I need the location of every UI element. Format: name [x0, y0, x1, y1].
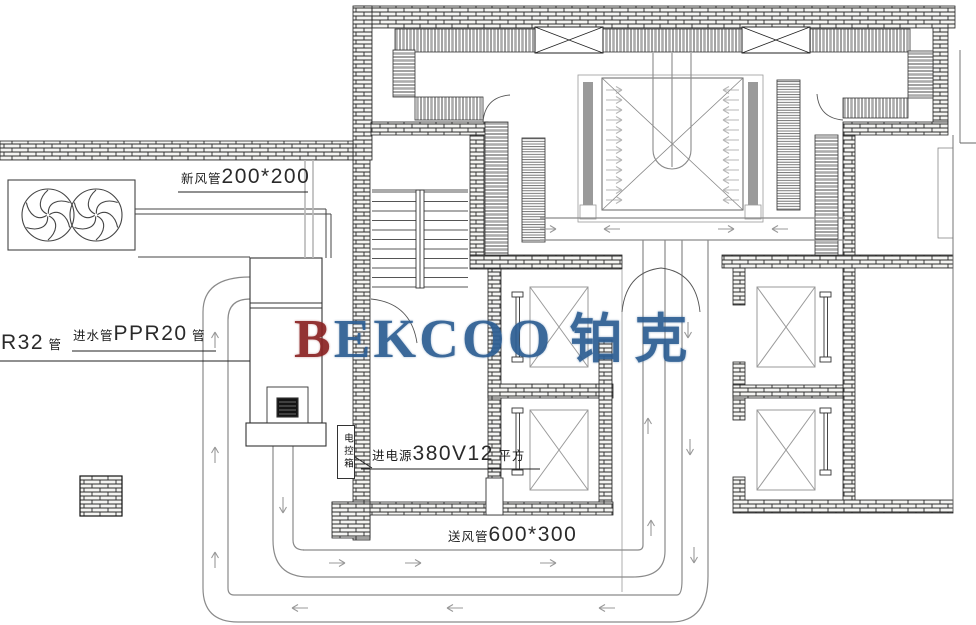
label-supply-air-duct: 送风管600*300	[448, 523, 577, 547]
watermark-letter-b: B	[294, 308, 334, 369]
watermark-chinese: 铂克	[569, 311, 699, 369]
elevator-shaft-3	[757, 287, 815, 367]
bekcoo-watermark: BEKCOO铂克	[294, 297, 699, 373]
label-water-inlet-pipe: 进水管PPR20 管	[73, 322, 206, 346]
rooftop-ahu	[578, 53, 763, 222]
label-power-supply: 进电源380V12 平方	[372, 442, 525, 466]
damper-box-2	[742, 27, 810, 53]
outdoor-condenser-unit	[8, 180, 135, 250]
label-fresh-air-duct: 新风管200*200	[181, 165, 310, 189]
label-r32-pipe: R32 管	[1, 331, 62, 355]
watermark-letters: EKCOO	[334, 308, 554, 369]
louver-riser-right	[777, 80, 800, 210]
damper-box-1	[535, 27, 603, 53]
elevator-shaft-2	[530, 410, 588, 490]
floor-plan-canvas: 新风管200*200 R32 管 进水管PPR20 管 进电源380V12 平方…	[0, 0, 976, 625]
ahu-center-drop-duct	[653, 53, 691, 169]
louver-riser-left	[522, 138, 545, 242]
staircase	[372, 190, 468, 288]
ahu-coil-right	[748, 82, 758, 205]
ahu-coil-left	[583, 82, 593, 205]
structural-column	[80, 476, 122, 516]
electric-control-box: 电控箱	[337, 425, 355, 479]
refrigerant-pipes	[135, 209, 331, 258]
elevator-shaft-4	[757, 410, 815, 490]
wall-opening	[486, 478, 503, 515]
